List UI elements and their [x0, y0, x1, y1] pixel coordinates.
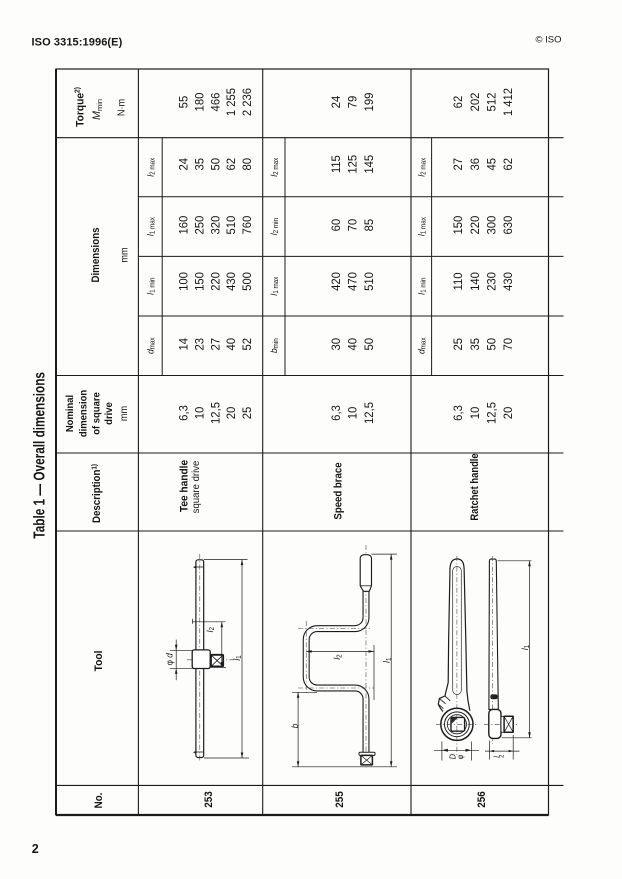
svg-text:Description1): Description1) — [91, 464, 103, 523]
svg-text:160: 160 — [177, 215, 190, 234]
svg-text:145: 145 — [363, 155, 376, 174]
svg-text:l2 max: l2 max — [145, 157, 156, 177]
svg-text:85: 85 — [363, 219, 376, 232]
svg-text:55: 55 — [177, 96, 190, 109]
svg-text:510: 510 — [363, 272, 376, 291]
svg-text:23: 23 — [193, 338, 206, 351]
svg-text:Dimensions: Dimensions — [90, 227, 102, 282]
svg-text:No.: No. — [94, 793, 106, 809]
svg-text:dmax: dmax — [416, 337, 427, 354]
svg-text:140: 140 — [469, 272, 482, 291]
svg-text:420: 420 — [330, 272, 343, 291]
svg-text:b: b — [289, 724, 300, 729]
svg-text:Mmin: Mmin — [91, 99, 104, 120]
svg-text:62: 62 — [502, 158, 515, 171]
svg-text:6,3: 6,3 — [452, 405, 465, 421]
svg-text:mm: mm — [119, 247, 131, 262]
svg-text:l1 min: l1 min — [416, 277, 427, 295]
svg-text:Torque2): Torque2) — [74, 87, 87, 127]
svg-text:l1: l1 — [381, 657, 392, 663]
svg-text:62: 62 — [452, 96, 465, 109]
svg-text:N·m: N·m — [116, 99, 128, 116]
svg-text:52: 52 — [241, 338, 254, 351]
svg-text:φ d: φ d — [164, 653, 175, 665]
svg-text:500: 500 — [241, 272, 254, 291]
svg-text:125: 125 — [346, 155, 359, 174]
svg-text:430: 430 — [502, 272, 515, 291]
svg-text:230: 230 — [485, 272, 498, 291]
svg-text:50: 50 — [209, 157, 222, 170]
svg-text:l2 min: l2 min — [269, 218, 280, 236]
svg-text:220: 220 — [469, 215, 482, 234]
svg-text:mm: mm — [119, 406, 131, 421]
svg-text:50: 50 — [485, 337, 498, 350]
svg-text:6,3: 6,3 — [177, 405, 190, 421]
svg-text:l1 max: l1 max — [269, 276, 280, 296]
svg-text:220: 220 — [209, 272, 222, 291]
svg-text:Table 1 — Overall dimensions: Table 1 — Overall dimensions — [31, 372, 48, 539]
svg-text:40: 40 — [346, 337, 359, 350]
svg-text:dmax: dmax — [145, 337, 156, 354]
svg-text:250: 250 — [193, 215, 206, 234]
svg-text:760: 760 — [241, 215, 254, 234]
svg-text:bmin: bmin — [269, 338, 280, 353]
svg-text:70: 70 — [502, 337, 515, 350]
svg-text:1 255: 1 255 — [225, 88, 238, 116]
svg-text:6,3: 6,3 — [330, 405, 343, 421]
svg-text:2: 2 — [498, 754, 505, 758]
svg-text:470: 470 — [346, 272, 359, 291]
svg-text:199: 199 — [363, 93, 376, 112]
svg-text:27: 27 — [209, 338, 222, 351]
svg-text:27: 27 — [452, 158, 465, 171]
svg-text:70: 70 — [346, 218, 359, 231]
svg-text:202: 202 — [469, 93, 482, 112]
svg-text:14: 14 — [177, 337, 190, 350]
svg-text:10: 10 — [193, 406, 206, 419]
svg-text:2: 2 — [32, 842, 39, 856]
svg-text:of square: of square — [91, 392, 102, 435]
svg-text:180: 180 — [193, 92, 206, 111]
svg-text:φ: φ — [456, 755, 465, 760]
svg-text:45: 45 — [485, 158, 498, 171]
svg-text:320: 320 — [209, 215, 222, 234]
svg-text:300: 300 — [485, 215, 498, 234]
svg-text:ISO 3315:1996(E): ISO 3315:1996(E) — [32, 36, 123, 48]
svg-text:255: 255 — [335, 791, 347, 808]
svg-text:drive: drive — [104, 402, 115, 425]
svg-text:Tool: Tool — [93, 651, 105, 672]
svg-text:150: 150 — [193, 272, 206, 291]
svg-text:60: 60 — [330, 218, 343, 231]
svg-text:20: 20 — [502, 406, 515, 419]
svg-text:79: 79 — [346, 96, 359, 109]
svg-text:dimension: dimension — [78, 390, 89, 437]
svg-text:35: 35 — [193, 158, 206, 171]
svg-text:430: 430 — [225, 272, 238, 291]
svg-text:l1: l1 — [520, 645, 531, 651]
svg-text:466: 466 — [209, 93, 222, 112]
svg-text:10: 10 — [469, 406, 482, 419]
svg-text:l1 min: l1 min — [145, 277, 156, 295]
svg-text:l2: l2 — [332, 654, 343, 660]
svg-text:l2 max: l2 max — [416, 157, 427, 177]
svg-text:Ratchet handle: Ratchet handle — [470, 453, 482, 521]
svg-text:24: 24 — [177, 157, 190, 170]
svg-text:Tee handle: Tee handle — [179, 460, 190, 512]
svg-text:12,5: 12,5 — [209, 402, 222, 424]
svg-text:36: 36 — [469, 158, 482, 171]
svg-text:Nominal: Nominal — [65, 395, 76, 433]
svg-text:25: 25 — [241, 407, 254, 420]
svg-text:30: 30 — [330, 337, 343, 350]
svg-text:40: 40 — [225, 337, 238, 350]
svg-text:12,5: 12,5 — [485, 402, 498, 424]
svg-text:20: 20 — [225, 406, 238, 419]
svg-text:2 236: 2 236 — [241, 88, 254, 116]
svg-text:110: 110 — [452, 272, 465, 290]
svg-text:25: 25 — [452, 338, 465, 351]
svg-text:l1: l1 — [232, 655, 243, 661]
svg-text:253: 253 — [204, 791, 216, 808]
svg-text:115: 115 — [330, 155, 343, 173]
svg-text:12,5: 12,5 — [363, 402, 376, 424]
svg-text:l2 max: l2 max — [269, 157, 280, 177]
svg-text:l1 max: l1 max — [145, 216, 156, 236]
svg-text:24: 24 — [330, 95, 343, 108]
svg-text:512: 512 — [485, 93, 498, 112]
svg-text:630: 630 — [502, 215, 515, 234]
svg-text:50: 50 — [363, 337, 376, 350]
svg-text:35: 35 — [469, 338, 482, 351]
svg-text:l2: l2 — [204, 627, 215, 633]
svg-text:62: 62 — [225, 158, 238, 171]
svg-text:10: 10 — [346, 406, 359, 419]
svg-text:150: 150 — [452, 215, 465, 234]
svg-text:100: 100 — [177, 272, 190, 291]
svg-text:l1 max: l1 max — [416, 216, 427, 236]
svg-text:510: 510 — [225, 215, 238, 234]
svg-text:1 412: 1 412 — [502, 88, 515, 116]
svg-text:Speed brace: Speed brace — [333, 462, 345, 519]
svg-text:80: 80 — [241, 157, 254, 170]
svg-text:256: 256 — [476, 791, 488, 808]
svg-text:square drive: square drive — [191, 460, 202, 513]
svg-text:© ISO: © ISO — [536, 34, 562, 45]
